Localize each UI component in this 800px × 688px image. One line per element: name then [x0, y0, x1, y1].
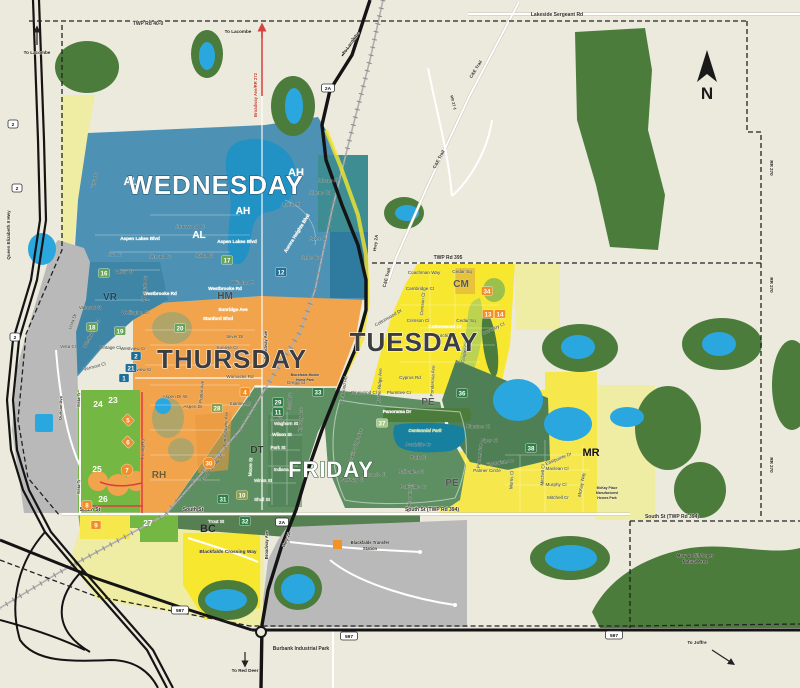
- badge-number: 38: [528, 445, 535, 452]
- zone-badge-38: 38: [525, 444, 536, 453]
- badge-number: 33: [315, 389, 322, 396]
- zone-badge-18: 18: [86, 323, 97, 332]
- highway-shield-2: 2: [10, 333, 20, 341]
- zone-badge-7: 7: [121, 464, 133, 476]
- transfer-station-icon: [333, 540, 342, 549]
- badge-number: 1: [122, 375, 126, 382]
- badge-number: 30: [206, 460, 213, 467]
- badge-number: 19: [117, 328, 124, 335]
- badge-number: 8: [85, 502, 89, 509]
- badge-number: 16: [101, 270, 108, 277]
- roundabout: [256, 627, 266, 637]
- collection-schedule-map: N Vista TrAspen Lakes BlvdAspen Lakes Bl…: [0, 0, 800, 688]
- zone-badge-4: 4: [240, 388, 250, 397]
- shield-number: 2A: [279, 520, 286, 526]
- zone-badge-27: 27: [143, 518, 153, 528]
- badge-number: 14: [497, 311, 504, 318]
- zone-badge-19: 19: [114, 327, 125, 336]
- shield-number: 2: [16, 186, 19, 192]
- badge-number: 18: [89, 324, 96, 331]
- badge-number: 2: [134, 353, 138, 360]
- zone-badge-33: 33: [312, 388, 323, 397]
- badge-number: 29: [275, 399, 282, 406]
- shield-number: 2A: [325, 86, 332, 92]
- zone-badge-1: 1: [119, 374, 129, 383]
- zone-badge-36: 36: [456, 389, 467, 398]
- badge-number: 34: [484, 288, 491, 295]
- zone-badge-24: 24: [93, 399, 103, 409]
- zone-badge-30: 30: [203, 457, 215, 469]
- badge-number: 21: [128, 365, 135, 372]
- zone-badge-11: 11: [272, 408, 283, 417]
- centennial-park-pond: [393, 423, 465, 453]
- highway-shield-2A: 2A: [322, 84, 335, 92]
- badge-number: 13: [485, 311, 492, 318]
- badge-number: 36: [459, 390, 466, 397]
- badge-number: 11: [275, 409, 282, 416]
- zone-badge-28: 28: [211, 404, 222, 413]
- badge-number: 17: [224, 257, 231, 264]
- zone-badge-23: 23: [108, 395, 118, 405]
- zone-badge-16: 16: [98, 269, 109, 278]
- highway-shield-597: 597: [172, 606, 189, 614]
- shield-number: 2: [14, 335, 17, 341]
- badge-number: 31: [220, 496, 227, 503]
- badge-number: 10: [239, 492, 246, 499]
- shield-number: 597: [610, 633, 618, 639]
- badge-number: 20: [177, 325, 184, 332]
- zone-badge-34: 34: [481, 287, 492, 296]
- highway-shield-597: 597: [606, 631, 623, 639]
- badge-number: 6: [126, 439, 130, 446]
- zone-badge-14: 14: [494, 310, 505, 319]
- zone-badge-32: 32: [239, 517, 250, 526]
- badge-number: 5: [126, 417, 130, 424]
- zone-badge-21: 21: [125, 364, 136, 373]
- badge-number: 25: [92, 464, 102, 474]
- zone-badge-17: 17: [221, 256, 232, 265]
- zone-badge-8: 8: [82, 501, 92, 510]
- badge-number: 26: [98, 494, 108, 504]
- badge-number: 32: [242, 518, 249, 525]
- badge-number: 12: [278, 269, 285, 276]
- map-canvas: N Vista TrAspen Lakes BlvdAspen Lakes Bl…: [0, 0, 800, 688]
- zone-badge-29: 29: [272, 398, 283, 407]
- zone-badge-9: 9: [91, 521, 101, 530]
- zone-badge-2: 2: [131, 352, 141, 361]
- shield-number: 597: [176, 608, 184, 614]
- compass-north-label: N: [701, 84, 713, 103]
- badge-number: 4: [243, 389, 247, 396]
- zone-badge-10: 10: [236, 491, 247, 500]
- highway-shield-2: 2: [12, 184, 22, 192]
- zone-badge-20: 20: [174, 324, 185, 333]
- badge-number: 23: [108, 395, 118, 405]
- shield-number: 2: [12, 122, 15, 128]
- zone-badge-37: 37: [376, 419, 387, 428]
- badge-number: 28: [214, 405, 221, 412]
- badge-number: 27: [143, 518, 153, 528]
- zone-badge-25: 25: [92, 464, 102, 474]
- highway-shield-597: 597: [341, 632, 358, 640]
- zone-badge-13: 13: [482, 310, 493, 319]
- zone-badge-12: 12: [275, 268, 286, 277]
- highway-shield-2A: 2A: [276, 518, 289, 526]
- highway-shield-2: 2: [8, 120, 18, 128]
- zone-badge-26: 26: [98, 494, 108, 504]
- badge-number: 9: [94, 522, 98, 529]
- badge-number: 24: [93, 399, 103, 409]
- shield-number: 597: [345, 634, 353, 640]
- badge-number: 37: [379, 420, 386, 427]
- zone-badge-31: 31: [217, 495, 228, 504]
- badge-number: 7: [125, 467, 129, 474]
